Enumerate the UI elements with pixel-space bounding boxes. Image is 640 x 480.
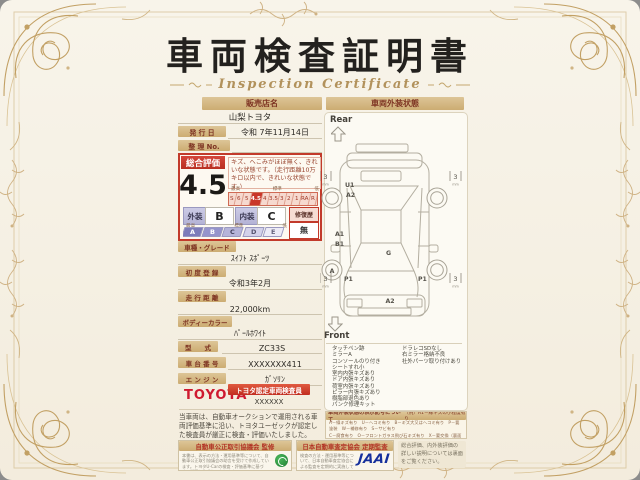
condition-item: 社外パーツ取り付けあり <box>402 359 464 365</box>
back-page-note: 総合評価、内外装評価の詳しい説明については裏面をご覧ください。 <box>398 441 466 468</box>
legend-divider <box>326 343 462 344</box>
repair-history-value: 無 <box>289 222 319 239</box>
exterior-state-header: 車両外装状態 <box>326 97 464 110</box>
issue-date-value: 令和 7年11月14日 <box>228 124 322 139</box>
damage-mark: G <box>386 250 391 257</box>
overall-scale-strip: S 6 5 4.5 4 3.5 3 2 1 RA R <box>228 192 318 206</box>
grade-cell: D <box>242 227 264 237</box>
svg-text:mm: mm <box>322 285 329 289</box>
certified-inspector-badge: トヨタ認定車両検査員 <box>228 384 310 395</box>
tire-mark-rear-left: 3 mm <box>320 171 331 187</box>
jaai-body: 検査の方法・運用基準等について、日本自動車査定協会による監査を定期的に実施してい… <box>300 453 354 471</box>
damage-mark: B1 <box>335 241 344 248</box>
overall-description: キズ、へこみがほぼ無く、きれいな状態です。（走行距離10万キロ以内で、きれいな状… <box>228 157 321 189</box>
tire-mark-front-right: 3 mm <box>450 273 461 289</box>
jaai-header: 日本自動車査定協会 定期監査 <box>297 441 393 451</box>
page-title: 車両検査証明書 <box>0 26 640 80</box>
ref-no-value <box>232 138 322 153</box>
front-down-arrow-icon <box>328 316 343 332</box>
condition-item: パンク修理キット <box>332 402 402 408</box>
overall-score: 4.5 <box>181 169 225 202</box>
council-block: 自動車公正取引協議会 監修 本書は、表示の方法・運用基準等について、自動車公正取… <box>178 440 292 471</box>
tire-mark-rear-right: 3 mm <box>450 171 461 187</box>
field-value-mileage: 22,000km <box>178 301 322 315</box>
damage-mark: A <box>330 268 335 275</box>
damage-mark: P1 <box>418 276 427 283</box>
jaai-block: 日本自動車査定協会 定期監査 検査の方法・運用基準等について、日本自動車査定協会… <box>296 440 394 471</box>
damage-mark: U1 <box>345 182 354 189</box>
grade-cell: E <box>262 227 284 237</box>
field-value-body-color: ﾊﾟｰﾙﾎﾜｲﾄ <box>178 326 322 340</box>
condition-list-left: タッチペン跡 ミラーA コンソールのり付き シートすれ小 室内内張キズあり ドア… <box>332 346 402 409</box>
svg-text:mm: mm <box>452 183 459 187</box>
damage-mark: A1 <box>335 231 344 238</box>
field-value-chassis-no: XXXXXXX411 <box>228 355 322 370</box>
svg-text:3: 3 <box>323 275 327 283</box>
field-label-chassis-no: 車 台 番 号 <box>178 357 226 368</box>
front-label: Front <box>324 331 349 341</box>
field-value-model: ｽｲﾌﾄ ｽﾎﾟｰﾂ <box>178 251 322 265</box>
repair-history-label: 修復歴 <box>289 207 319 222</box>
council-header: 自動車公正取引協議会 監修 <box>179 441 291 451</box>
symbol-note-line: A－線キズ有り U－ヘコミ有り B－キズ大又はヘコミ有り P－要塗装 W－補修有… <box>329 421 463 434</box>
grade-cell: C <box>222 227 244 237</box>
field-value-model-code: ZC33S <box>222 339 322 354</box>
right-flourish-icon <box>428 81 470 89</box>
car-diagram: 3 mm 3 mm 3 mm 3 mm U1 A2 A1 B1 G A P1 P… <box>320 140 468 322</box>
condition-list-right: ドラレコSDなし 右ミラー格納不良 社外パーツ取り付けあり <box>402 346 464 365</box>
overall-evaluation-box: 総合評価 4.5 キズ、へこみがほぼ無く、きれいな状態です。（走行距離10万キロ… <box>178 153 322 241</box>
overall-evaluation-label: 総合評価 <box>181 156 225 169</box>
symbol-note-line: C－腐食有り O－フロントガラス飛び石キズ有り X－要交換（裏面に補修有り） X… <box>329 434 463 439</box>
issue-date-label: 発 行 日 <box>178 126 226 137</box>
svg-text:3: 3 <box>323 173 327 181</box>
page-subtitle: Inspection Certificate <box>218 77 421 92</box>
jaai-logo: JAAI <box>357 452 390 467</box>
damage-mark: P1 <box>344 276 353 283</box>
inspection-certificate-page: 車両検査証明書 Inspection Certificate 販売店名 山梨トヨ… <box>0 0 640 480</box>
council-green-logo <box>275 454 288 467</box>
symbol-note-header: 車両外装状態の表示記号について （例）A1－線キズの小程度有り <box>326 412 466 420</box>
svg-text:3: 3 <box>453 173 457 181</box>
council-body: 本書は、表示の方法・運用基準等について、自動車公正取引協議会の助言を受けて作成し… <box>182 453 270 471</box>
field-label-engine: エ ン ジ ン <box>178 373 226 384</box>
seller-name: 山梨トヨタ <box>178 109 322 124</box>
svg-text:mm: mm <box>322 183 329 187</box>
field-value-first-registration: 令和3年2月 <box>178 276 322 290</box>
inspector-id: XXXXXX <box>238 398 300 406</box>
grade-scale-strip: A B C D E <box>183 227 284 237</box>
field-label-model-code: 型 式 <box>178 341 218 352</box>
disclaimer-text: 当車両は、自動車オークションで運用される車両評価基準に沿い、トヨタユーゼックが認… <box>179 409 321 440</box>
svg-text:3: 3 <box>453 275 457 283</box>
damage-mark: A2 <box>385 298 394 305</box>
symbol-note-body: A－線キズ有り U－ヘコミ有り B－キズ大又はヘコミ有り P－要塗装 W－補修有… <box>326 420 466 439</box>
certificate-paper: 車両検査証明書 Inspection Certificate 販売店名 山梨トヨ… <box>0 0 640 480</box>
symbol-note-box: 車両外装状態の表示記号について （例）A1－線キズの小程度有り A－線キズ有り … <box>325 411 467 439</box>
page-subtitle-row: Inspection Certificate <box>0 74 640 93</box>
svg-text:mm: mm <box>452 285 459 289</box>
damage-mark: A2 <box>346 192 355 199</box>
rear-label: Rear <box>330 115 352 125</box>
left-flourish-icon <box>170 81 212 89</box>
ref-no-label: 整 理 No. <box>178 140 230 151</box>
